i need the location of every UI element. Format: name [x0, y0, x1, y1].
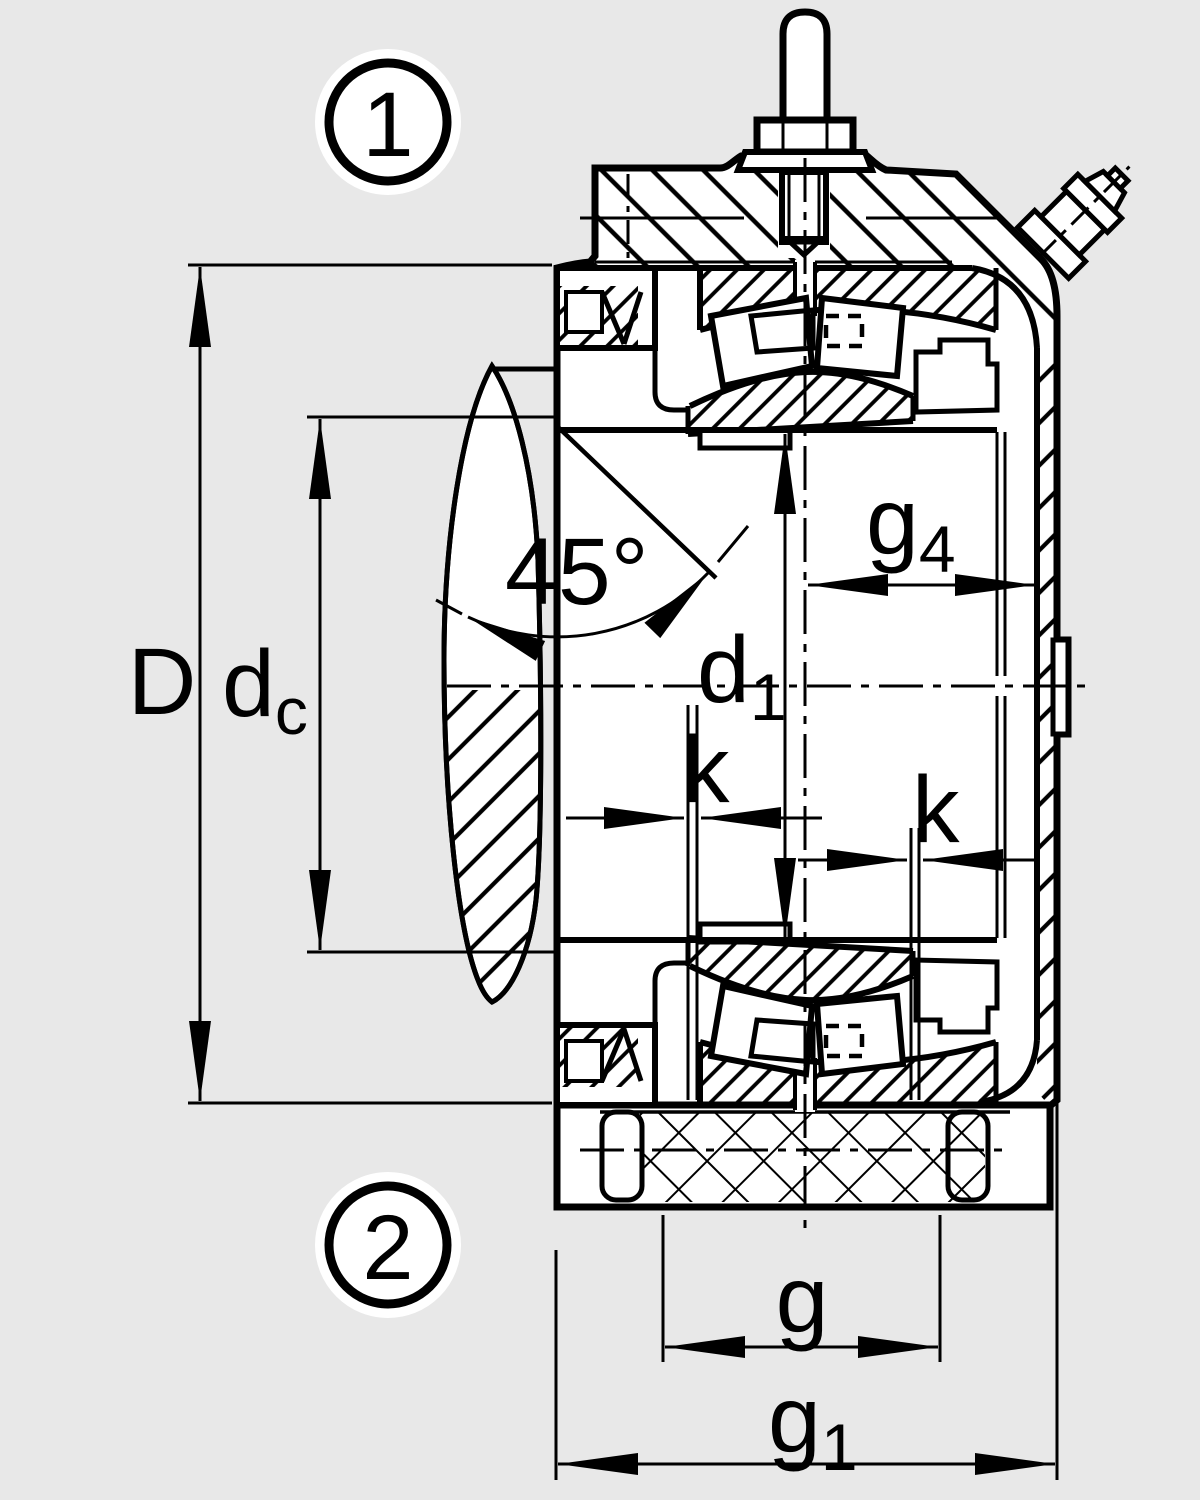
label-g: g	[776, 1247, 829, 1353]
callout-2-badge: 2	[322, 1179, 454, 1311]
label-D: D	[128, 629, 197, 735]
label-k-lower: k	[912, 757, 960, 863]
drawing-canvas: D dc 45° d1 g4 k k	[0, 0, 1200, 1500]
label-45deg: 45°	[505, 519, 649, 625]
locknut-lower	[916, 960, 997, 1032]
locknut-upper	[916, 340, 997, 412]
dimension-g: g	[663, 1215, 940, 1362]
base-flange	[580, 1112, 1010, 1202]
callout-2-number: 2	[362, 1197, 413, 1299]
label-dc: dc	[222, 631, 308, 748]
technical-drawing: D dc 45° d1 g4 k k	[0, 0, 1200, 1500]
callout-1-number: 1	[362, 74, 413, 176]
label-g1: g1	[768, 1367, 858, 1484]
callout-1-badge: 1	[322, 56, 454, 188]
label-k-upper: k	[682, 717, 730, 823]
